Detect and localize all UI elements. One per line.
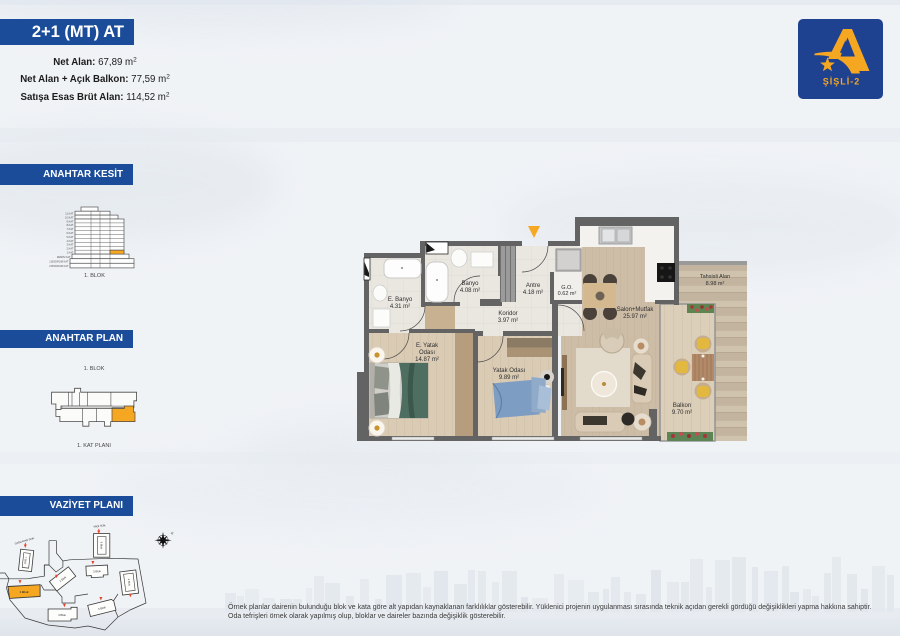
svg-text:25.97 m²: 25.97 m²: [623, 314, 647, 320]
svg-text:ZEMİN KAT: ZEMİN KAT: [57, 254, 71, 259]
svg-text:4.31 m²: 4.31 m²: [390, 304, 410, 310]
svg-text:11.KAT: 11.KAT: [65, 212, 74, 216]
svg-text:1.BODRUM KAT: 1.BODRUM KAT: [49, 260, 69, 264]
svg-text:5.KAT: 5.KAT: [66, 235, 73, 239]
svg-text:4.18 m²: 4.18 m²: [523, 290, 543, 296]
svg-text:E. Yatak: E. Yatak: [416, 343, 439, 349]
svg-text:7.KAT: 7.KAT: [66, 227, 73, 231]
svg-text:E. Banyo: E. Banyo: [388, 297, 413, 303]
svg-text:1.KAT: 1.KAT: [66, 251, 73, 255]
svg-text:Balkon: Balkon: [673, 403, 691, 409]
svg-text:Koridor: Koridor: [498, 311, 517, 317]
svg-text:0.62 m²: 0.62 m²: [558, 291, 577, 297]
svg-text:8.KAT: 8.KAT: [66, 223, 73, 227]
svg-text:8.98 m²: 8.98 m²: [706, 281, 725, 287]
svg-text:3.KAT: 3.KAT: [66, 243, 73, 247]
svg-text:6 Blok: 6 Blok: [100, 542, 104, 550]
svg-text:14.87 m²: 14.87 m²: [415, 357, 439, 363]
svg-text:3 Blok: 3 Blok: [93, 569, 102, 573]
svg-text:Banyo: Banyo: [461, 281, 479, 287]
svg-text:Yatak Odası: Yatak Odası: [493, 368, 526, 374]
svg-text:7 Blok: 7 Blok: [23, 557, 28, 565]
svg-text:VADİ SOK.: VADİ SOK.: [93, 522, 107, 529]
svg-text:4.KAT: 4.KAT: [66, 239, 73, 243]
svg-text:Salon+Mutfak: Salon+Mutfak: [617, 307, 655, 313]
svg-text:Odası: Odası: [419, 350, 435, 356]
svg-text:1 Blok: 1 Blok: [19, 590, 28, 594]
svg-text:2.KAT: 2.KAT: [66, 247, 73, 251]
svg-text:9.70 m²: 9.70 m²: [672, 410, 692, 416]
svg-text:6.KAT: 6.KAT: [66, 231, 73, 235]
svg-text:4.08 m²: 4.08 m²: [460, 288, 480, 294]
svg-text:Antre: Antre: [526, 283, 541, 289]
svg-text:9.89 m²: 9.89 m²: [499, 375, 519, 381]
svg-text:9.KAT: 9.KAT: [66, 219, 73, 223]
svg-text:ÇAĞLAYAN SOK.: ÇAĞLAYAN SOK.: [14, 535, 36, 546]
svg-text:2.BODRUM KAT: 2.BODRUM KAT: [49, 264, 69, 268]
svg-text:Tahsisli Alan: Tahsisli Alan: [700, 274, 730, 280]
svg-text:4 Blok: 4 Blok: [58, 613, 66, 617]
svg-text:3.97 m²: 3.97 m²: [498, 318, 518, 324]
svg-text:ŞİŞLİ-2: ŞİŞLİ-2: [823, 77, 861, 87]
svg-text:10.KAT: 10.KAT: [65, 215, 74, 219]
svg-text:K: K: [170, 531, 175, 536]
